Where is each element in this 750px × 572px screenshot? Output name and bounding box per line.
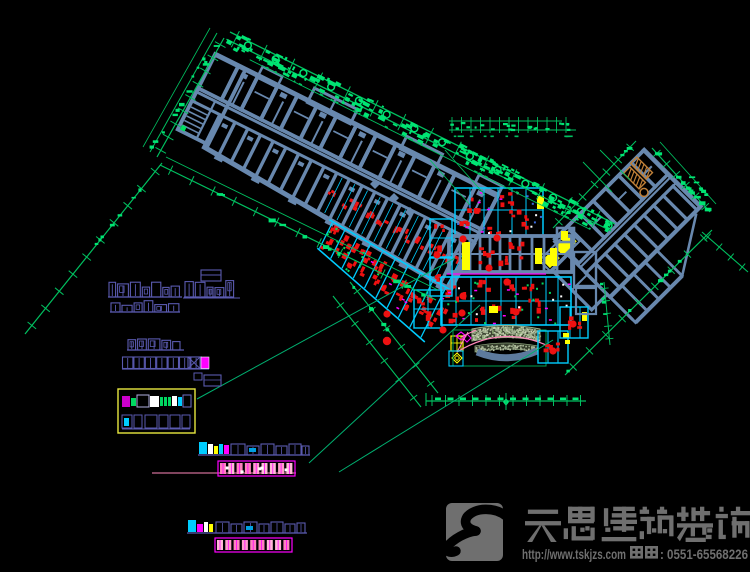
svg-text:http://www.tskjzs.com: http://www.tskjzs.com — [522, 546, 626, 562]
svg-text:: 0551-65568226: : 0551-65568226 — [660, 546, 748, 562]
